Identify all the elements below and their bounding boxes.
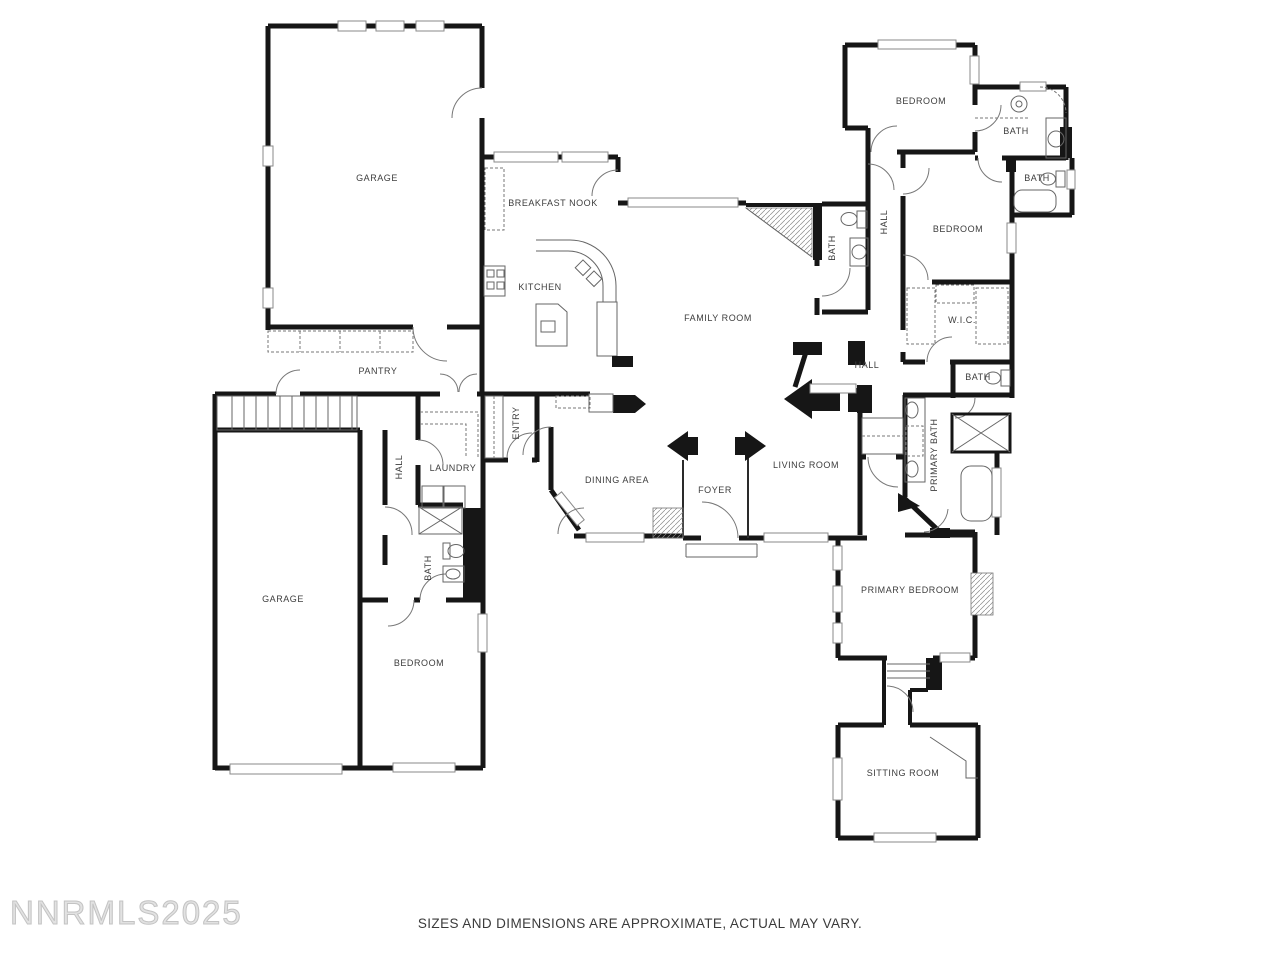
kitchen-counter-inner <box>536 251 603 302</box>
room-label-bath-small-top: BATH <box>1024 173 1050 183</box>
room-label-wic: W.I.C. <box>948 315 976 325</box>
room-label-foyer: FOYER <box>698 485 732 495</box>
entry-tile-hatch <box>653 508 683 538</box>
room-label-hall-mid: HALL <box>855 360 880 370</box>
room-label-entry: ENTRY <box>511 406 521 439</box>
bath3-toilet-tank <box>1001 370 1010 386</box>
room-label-bath-mid: BATH <box>965 372 991 382</box>
wic-shelves-left <box>907 288 935 344</box>
bath1-sink-1 <box>1011 96 1027 112</box>
opening-arrow-markers <box>613 379 840 461</box>
bath4-vanity <box>850 238 868 266</box>
primary-sink-2 <box>906 461 918 477</box>
room-label-garage-1: GARAGE <box>356 173 398 183</box>
room-label-hall-left: HALL <box>394 455 404 480</box>
hatched-areas <box>653 208 993 615</box>
wic-shelves-right <box>976 288 1008 344</box>
laundry-fixtures <box>419 396 590 582</box>
room-label-garage-2: GARAGE <box>262 594 304 604</box>
room-label-sitting-room: SITTING ROOM <box>867 768 940 778</box>
disclaimer-text: SIZES AND DIMENSIONS ARE APPROXIMATE, AC… <box>0 916 1280 931</box>
dining-counter <box>556 396 590 408</box>
room-label-primary-bath: PRIMARY BATH <box>929 418 939 491</box>
bath2-toilet-tank <box>1056 171 1065 187</box>
bath4-toilet <box>841 213 857 226</box>
room-label-bedroom-left: BEDROOM <box>394 658 444 668</box>
primary-shower <box>952 414 1010 452</box>
laundry-counter <box>420 412 478 458</box>
room-label-bath-top: BATH <box>1003 126 1029 136</box>
room-label-bath-wing: BATH <box>827 235 837 261</box>
room-label-pantry: PANTRY <box>359 366 398 376</box>
primary-sink-1 <box>906 402 918 418</box>
kitchen-sink <box>575 260 591 276</box>
kitchen-cabinets <box>485 168 504 230</box>
primary-tub <box>961 466 992 521</box>
room-label-hall-wing: HALL <box>879 210 889 235</box>
room-label-bath-left: BATH <box>423 555 433 581</box>
room-label-dining-area: DINING AREA <box>585 475 649 485</box>
primary-closet-hatch <box>971 573 993 615</box>
bath2-tub <box>1014 190 1056 212</box>
room-label-laundry: LAUNDRY <box>430 463 477 473</box>
bath4-sink <box>852 245 866 259</box>
walls <box>215 26 1072 838</box>
floor-plan-page: GARAGE BREAKFAST NOOK KITCHEN FAMILY ROO… <box>0 0 1280 960</box>
primary-vanity <box>905 398 925 482</box>
room-label-bedroom-top: BEDROOM <box>896 96 946 106</box>
room-label-breakfast-nook: BREAKFAST NOOK <box>508 198 598 208</box>
room-label-kitchen: KITCHEN <box>518 282 561 292</box>
wic-shelves-top <box>936 285 974 303</box>
room-label-primary-bedroom: PRIMARY BEDROOM <box>861 585 959 595</box>
room-label-family-room: FAMILY ROOM <box>684 313 752 323</box>
left-bath-toilet-tank <box>443 543 450 559</box>
room-label-living-room: LIVING ROOM <box>773 460 839 470</box>
corridor-steps <box>887 664 930 678</box>
foyer-porch <box>686 544 757 557</box>
room-label-bedroom-right: BEDROOM <box>933 224 983 234</box>
kitchen-counter-outer <box>536 240 616 302</box>
